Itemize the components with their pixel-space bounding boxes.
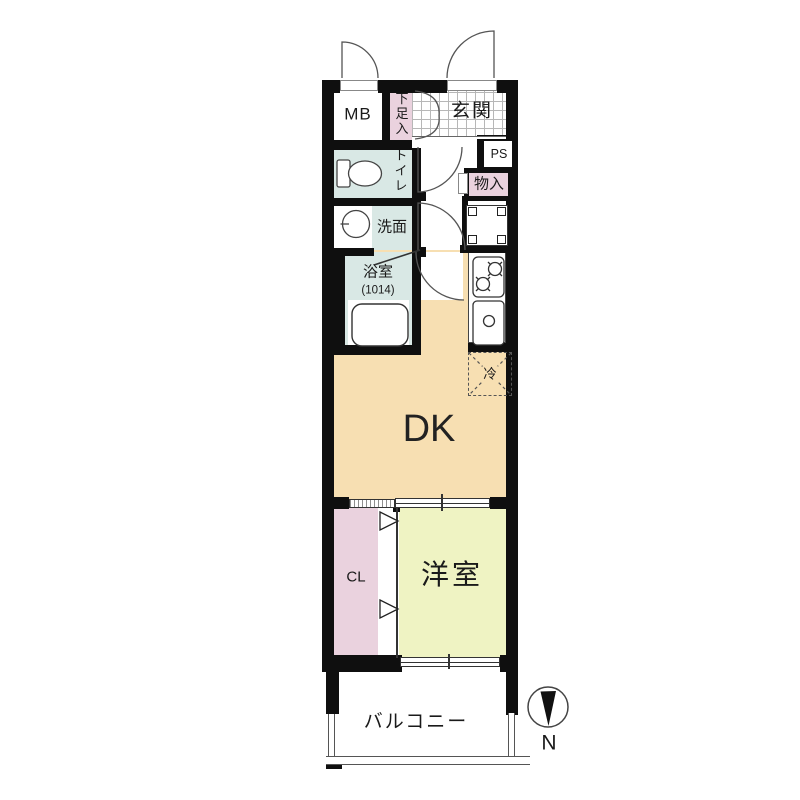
closet-folding-door-icon (380, 512, 398, 618)
shoe-box-bifold-door (415, 91, 439, 139)
meter-box-label: MB (344, 106, 372, 123)
mb-door-swing (342, 42, 378, 78)
bathroom-label: 浴室 (363, 265, 393, 280)
storage-label: 物入 (474, 177, 504, 192)
toilet-label: トイレ (394, 149, 407, 194)
bathtub-icon (352, 304, 408, 346)
shoe-box-label: 下足入 (395, 92, 408, 137)
toilet-icon (337, 160, 382, 187)
floor-plan: MB 下足入 玄関 PS トイレ 物入 洗面 浴室 (1014) 冷 DK CL… (0, 0, 800, 800)
closet-label: CL (346, 570, 365, 585)
stove-icon (473, 257, 504, 297)
washbasin-icon (341, 211, 370, 238)
washroom-door-swing (418, 203, 465, 250)
refrigerator-label: 冷 (482, 366, 498, 382)
western-room-label: 洋室 (421, 561, 483, 589)
toilet-door-swing (418, 147, 462, 192)
bathroom-size-label: (1014) (361, 285, 394, 297)
entrance-label: 玄関 (451, 102, 493, 121)
compass-north-label: N (541, 733, 556, 754)
balcony-label: バルコニー (364, 713, 469, 732)
entry-door-swing (447, 31, 494, 78)
kitchen-hall-door-swing (416, 252, 464, 300)
kitchen-sink-icon (473, 301, 504, 345)
compass-icon (528, 687, 568, 727)
washroom-label: 洗面 (377, 220, 407, 235)
pipe-space-label: PS (491, 148, 508, 161)
dining-kitchen-label: DK (403, 410, 456, 448)
